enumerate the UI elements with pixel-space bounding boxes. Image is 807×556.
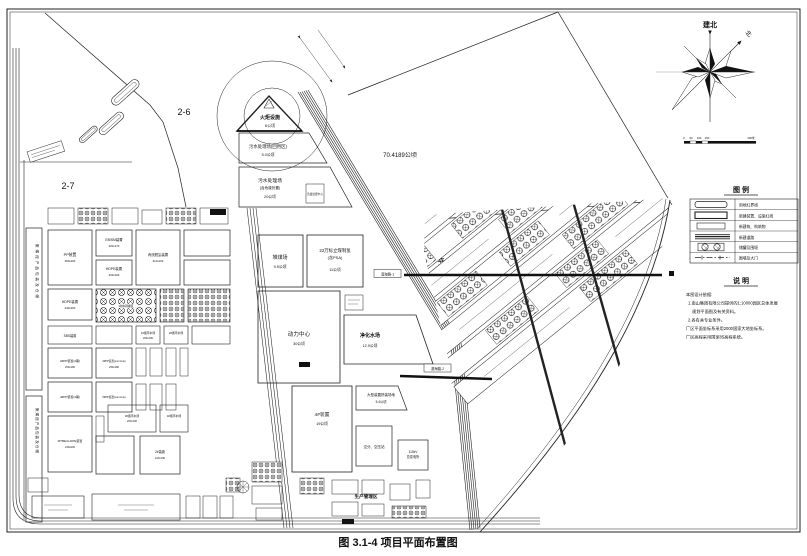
legend-symbol-wall-gate <box>695 256 730 260</box>
wastewater-reuse-parcel: 污水处理场(回用区) 5.0公顷 <box>239 133 327 163</box>
ebsm-unit-dims: 200x170 <box>109 244 120 248</box>
left-plant-grid: 聚烯烃产品包装及仓储 聚烯烃产品包装及仓储 PP装置 360x200 EB/SM… <box>26 208 249 522</box>
pp3-label: 3#PP装置(Lummus) <box>102 359 125 363</box>
hdpe2-unit-label: HDPE装置 <box>62 299 79 304</box>
cw1-label: 1#循环水场 <box>141 331 156 335</box>
hdpe-unit-dims: 200x160 <box>109 273 120 277</box>
cw2-label: 2#循环水场 <box>169 331 184 335</box>
pack-storage-label-2: 聚烯烃产品包装及仓储 <box>35 408 40 454</box>
wastewater-plant-parcel: 污水处理场 (含危废处置) 20公顷 危废处置中心 <box>239 167 352 207</box>
legend: 图 例 用地红界线 新建装置、设施红线 新建筑、构筑物 新建道路 储罐及围堰 <box>690 185 798 263</box>
unit4-area: 19公顷 <box>316 421 328 426</box>
substation-label-1: 110kV <box>409 450 419 454</box>
gate-symbol <box>669 271 674 276</box>
legend-label-0: 用地红界线 <box>739 203 758 208</box>
coal-yard-label: 堆煤场 <box>272 254 287 261</box>
power-area: 30公顷 <box>293 341 305 346</box>
wharf-area-label: 70.4189公顷 <box>383 151 417 159</box>
pp2-label: 2#PP装置(2期) <box>60 358 80 363</box>
flare-area-label: 6公顷 <box>265 122 275 128</box>
coal-yard-parcel: 堆煤场 9.5公顷 <box>258 235 303 287</box>
haz-center-label: 危废处置中心 <box>307 192 323 196</box>
hdpe2-unit-dims: 240x200 <box>65 306 76 310</box>
small-rose-symbol <box>237 481 249 493</box>
unit2-dims: 220x190 <box>155 456 166 460</box>
substation-label-2: 总变电所 <box>407 454 421 459</box>
scale-tick-100: 100 <box>697 136 702 140</box>
cw1-dims: 200x100 <box>143 336 154 340</box>
pp-unit-label: PP装置 <box>64 252 77 257</box>
unit4-parcel: 4#装置 19公顷 <box>292 386 352 472</box>
power-label: 动力中心 <box>288 330 311 338</box>
pp5-label: 5#PP装置(Lummus) <box>102 395 125 399</box>
scale-tick-50: 50 <box>689 136 693 140</box>
notes-line-0: 本图设计依据: <box>686 291 712 298</box>
pp2-dims: 250x180 <box>65 365 76 369</box>
ebsm-unit-label: EB/SM装置 <box>105 237 123 242</box>
pp4-label: 4#PP装置(2期) <box>60 394 80 399</box>
pdh-unit-label: 丙烷脱氢装置 <box>148 252 169 257</box>
air-separation-parcel: 空分、空压站 <box>356 426 392 466</box>
scale-tick-150: 150 <box>705 136 710 140</box>
road-name-box <box>210 209 226 215</box>
assembly-area: 5.4公顷 <box>376 399 388 404</box>
hdpe-unit-label: HDPE装置 <box>106 266 123 271</box>
notes-line-3: 2.各有关专业条件。 <box>688 317 725 324</box>
coal-to-hydrogen-parcel: 22万标立煤制氢 (含PSA) 11公顷 <box>307 235 363 287</box>
scale-tick-300: 300米 <box>747 136 755 140</box>
cw3-dims: 200x100 <box>127 419 138 423</box>
legend-symbol-building <box>697 223 725 229</box>
purified-water-parcel: 净化水场 12.9公顷 <box>344 295 433 364</box>
legend-label-3: 新建道路 <box>739 235 754 240</box>
site-plan-drawing: 2-6 2-7 火炬设施 6公顷 污水处理场(回用区) 5.0公顷 污水处理场 … <box>0 0 807 556</box>
ww-area-label: 20公顷 <box>264 194 276 199</box>
assembly-label: 大型装置拼装场地 <box>367 392 395 397</box>
air-station-label: 空分、空压站 <box>364 444 385 449</box>
coal-h2-label: 22万标立煤制氢 <box>319 247 351 254</box>
ww-reuse-area: 5.0公顷 <box>262 152 275 157</box>
ww-sub-label: (含危废处置) <box>260 185 280 190</box>
construction-north-label: 建北 <box>703 20 717 29</box>
assembly-yard-parcel: 大型装置拼装场地 5.4公顷 <box>356 386 407 410</box>
notes-line-4: 厂区平面坐标系采用2000国家大地坐标系。 <box>686 325 767 332</box>
substation-parcel: 110kV 总变电所 <box>398 440 428 470</box>
coastline-northwest <box>20 13 186 207</box>
north-label: 北 <box>743 29 753 39</box>
berthed-ship <box>110 78 141 107</box>
figure-title: 图 3.1-4 项目平面布置图 <box>338 535 457 549</box>
scale-tick-0: 0 <box>683 136 685 140</box>
ww-reuse-label: 污水处理场(回用区) <box>249 143 288 150</box>
figure-title-block: 图 3.1-4 项目平面布置图 <box>338 535 457 549</box>
legend-title: 图 例 <box>733 185 749 194</box>
unit4-label: 4#装置 <box>315 411 330 418</box>
legend-label-1: 新建装置、设施红线 <box>739 214 773 219</box>
notes-title: 说 明 <box>733 276 749 285</box>
notes-line-2: 规划平面图及有关资料。 <box>692 308 738 315</box>
pp3-dims: 250x180 <box>109 365 120 369</box>
unit2-label: 2#装置 <box>155 449 165 454</box>
legend-symbol-road <box>695 235 730 239</box>
parcel-2-6-label: 2-6 <box>177 107 190 117</box>
binhai-road-2-label: 滨海路-2 <box>431 366 444 371</box>
compass-rose: 建北 北 0 50 100 150 300米 <box>656 20 756 144</box>
legend-symbol-site-boundary <box>695 202 727 208</box>
legend-label-4: 储罐及围堰 <box>739 245 758 250</box>
pack-storage-label-1: 聚烯烃产品包装及仓储 <box>35 244 40 300</box>
cw4-label: 4#循环水场 <box>167 414 182 418</box>
berthed-ship <box>98 110 126 136</box>
road-name-box <box>299 362 310 367</box>
parcel-2-7-label: 2-7 <box>61 181 74 191</box>
midtank-label: 1#中间罐区 <box>118 303 133 308</box>
power-center-parcel: 动力中心 30公顷 <box>258 291 340 383</box>
sbs-unit-label: SBS装置 <box>64 333 77 338</box>
pdh-unit-dims: 310x160 <box>153 259 164 263</box>
site-plan-page: 2-6 2-7 火炬设施 6公顷 污水处理场(回用区) 5.0公顷 污水处理场 … <box>0 0 807 556</box>
berthed-ship <box>78 125 98 144</box>
notes-line-5: 厂区高程采用国家85高程系统。 <box>686 334 745 341</box>
coal-h2-area: 11公顷 <box>329 267 341 272</box>
water-label: 净化水场 <box>360 332 380 339</box>
coal-yard-area: 9.5公顷 <box>274 264 287 269</box>
flare-label: 火炬设施 <box>260 114 280 121</box>
binhai-road-1-label: 滨海路-1 <box>381 272 394 277</box>
coal-h2-sub: (含PSA) <box>328 254 343 260</box>
legend-label-5: 围墙及大门 <box>739 256 758 261</box>
scale-bar: 0 50 100 150 300米 <box>683 136 756 144</box>
flare-facility-parcel: 火炬设施 6公顷 <box>217 30 345 171</box>
legend-symbol-tank-dike <box>698 243 724 251</box>
legend-symbol-unit-redline <box>695 212 727 219</box>
mtbe-dims: 240x200 <box>65 445 76 449</box>
water-area: 12.9公顷 <box>363 343 378 348</box>
mtbe-label: MTBE/LLDPE装置 <box>58 438 83 443</box>
pp-unit-dims: 360x200 <box>65 259 76 263</box>
cw3-label: 3#循环水场 <box>125 414 140 418</box>
notes: 说 明 本图设计依据: 1.南山集团有限公司提供的1:10000园区总体发展 规… <box>686 276 779 341</box>
notes-line-1: 1.南山集团有限公司提供的1:10000园区总体发展 <box>688 300 779 307</box>
management-area: 生产管理区 <box>252 462 430 524</box>
ww-label: 污水处理场 <box>258 177 282 184</box>
legend-label-2: 新建筑、构筑物 <box>739 224 766 229</box>
